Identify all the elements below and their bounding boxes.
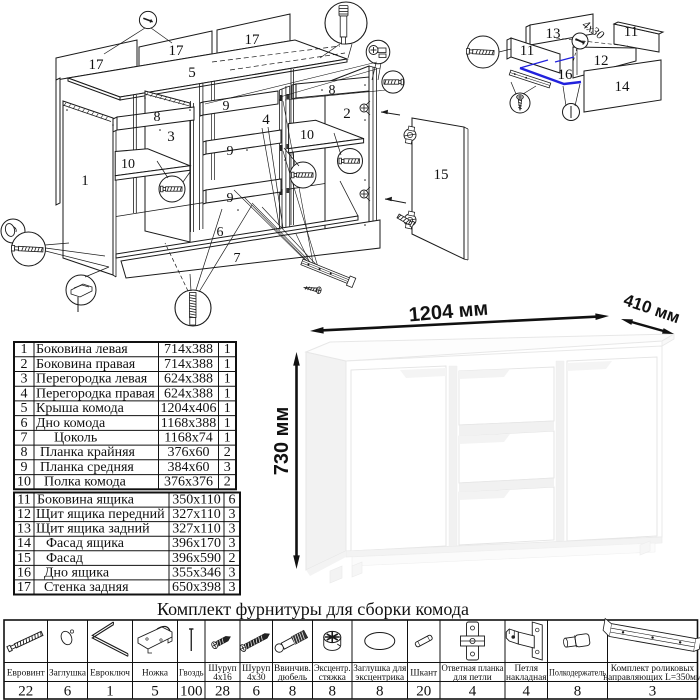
- svg-text:396х170: 396х170: [172, 536, 221, 551]
- svg-text:327х110: 327х110: [172, 522, 220, 537]
- svg-text:Ножка: Ножка: [142, 669, 168, 679]
- svg-text:5: 5: [21, 401, 28, 416]
- svg-text:Планка крайняя: Планка крайняя: [40, 445, 136, 460]
- svg-text:1204х406: 1204х406: [161, 401, 217, 416]
- svg-text:396х590: 396х590: [172, 551, 221, 566]
- svg-text:1: 1: [106, 684, 114, 700]
- svg-text:Боковина левая: Боковина левая: [36, 342, 128, 357]
- svg-text:9: 9: [21, 460, 28, 475]
- svg-text:3: 3: [229, 580, 236, 595]
- svg-text:5: 5: [151, 684, 159, 700]
- svg-text:направляющих L=350мм: направляющих L=350мм: [603, 673, 700, 683]
- svg-text:5: 5: [188, 65, 196, 81]
- svg-text:7: 7: [21, 431, 28, 446]
- svg-text:17: 17: [89, 57, 105, 73]
- svg-text:6: 6: [21, 416, 28, 431]
- svg-text:15: 15: [17, 551, 31, 566]
- svg-text:3: 3: [21, 372, 28, 387]
- svg-text:2: 2: [224, 475, 231, 490]
- svg-text:3: 3: [229, 522, 236, 537]
- svg-text:10: 10: [17, 475, 31, 490]
- svg-text:17: 17: [169, 43, 185, 59]
- svg-text:1168х388: 1168х388: [161, 416, 216, 431]
- svg-text:дюбель: дюбель: [278, 672, 307, 683]
- svg-text:17: 17: [17, 580, 31, 595]
- svg-text:327х110: 327х110: [172, 507, 220, 522]
- svg-text:3: 3: [229, 565, 236, 580]
- svg-text:4х16: 4х16: [213, 673, 232, 683]
- svg-text:4: 4: [523, 684, 531, 700]
- svg-text:12: 12: [17, 507, 31, 522]
- svg-text:4: 4: [21, 386, 28, 401]
- svg-text:14: 14: [17, 536, 31, 551]
- svg-text:11: 11: [624, 24, 638, 40]
- svg-text:9: 9: [227, 144, 234, 159]
- svg-text:Фасад ящика: Фасад ящика: [46, 536, 125, 551]
- svg-text:22: 22: [18, 684, 33, 700]
- svg-text:1: 1: [224, 357, 231, 372]
- svg-text:8: 8: [21, 445, 28, 460]
- svg-text:стяжка: стяжка: [319, 673, 346, 683]
- svg-text:7: 7: [234, 251, 241, 266]
- svg-text:Боковина ящика: Боковина ящика: [37, 492, 135, 507]
- svg-text:Боковина правая: Боковина правая: [36, 357, 136, 372]
- svg-text:376х376: 376х376: [164, 475, 213, 490]
- svg-text:2: 2: [224, 445, 231, 460]
- svg-text:6: 6: [229, 492, 236, 507]
- svg-text:1: 1: [224, 416, 231, 431]
- svg-text:Полкодержатель: Полкодержатель: [549, 669, 606, 679]
- svg-text:2: 2: [229, 551, 236, 566]
- svg-text:16: 16: [17, 565, 31, 580]
- svg-text:1: 1: [224, 342, 231, 357]
- svg-text:Фасад: Фасад: [46, 551, 83, 566]
- svg-text:Щит ящика задний: Щит ящика задний: [36, 522, 150, 537]
- svg-text:2: 2: [343, 106, 351, 122]
- svg-text:15: 15: [434, 167, 449, 183]
- svg-text:1: 1: [224, 431, 231, 446]
- svg-text:8: 8: [376, 684, 384, 700]
- svg-text:9: 9: [227, 191, 234, 206]
- svg-text:650х398: 650х398: [172, 580, 221, 595]
- svg-text:8: 8: [289, 684, 297, 700]
- svg-text:Гвоздь: Гвоздь: [179, 669, 204, 679]
- svg-text:10: 10: [300, 128, 314, 143]
- svg-text:11: 11: [17, 492, 30, 507]
- svg-text:1: 1: [224, 372, 231, 387]
- svg-text:8: 8: [154, 110, 161, 125]
- svg-text:3: 3: [167, 129, 175, 145]
- svg-text:9: 9: [223, 99, 230, 114]
- svg-text:Шкант: Шкант: [410, 669, 437, 679]
- svg-text:714х388: 714х388: [164, 357, 213, 372]
- svg-text:Дно ящика: Дно ящика: [44, 565, 110, 580]
- svg-text:Перегородка левая: Перегородка левая: [36, 372, 148, 387]
- svg-text:Планка средняя: Планка средняя: [40, 460, 134, 475]
- svg-text:1168х74: 1168х74: [164, 431, 212, 446]
- svg-text:3: 3: [649, 684, 657, 700]
- svg-text:Евроключ: Евроключ: [90, 669, 130, 679]
- svg-text:16: 16: [558, 67, 574, 83]
- svg-text:эксцентрика: эксцентрика: [355, 673, 404, 683]
- svg-text:для петли: для петли: [453, 673, 492, 683]
- svg-text:Перегородка правая: Перегородка правая: [36, 386, 155, 401]
- svg-text:1: 1: [224, 386, 231, 401]
- svg-text:6: 6: [64, 684, 72, 700]
- svg-text:3: 3: [229, 536, 236, 551]
- svg-text:624х388: 624х388: [164, 372, 213, 387]
- svg-text:Дно комода: Дно комода: [36, 416, 106, 431]
- svg-text:350х110: 350х110: [172, 492, 220, 507]
- svg-text:624х388: 624х388: [164, 386, 213, 401]
- svg-text:28: 28: [215, 684, 230, 700]
- svg-text:2: 2: [21, 357, 28, 372]
- svg-text:355х346: 355х346: [172, 565, 221, 580]
- svg-text:Стенка задняя: Стенка задняя: [44, 580, 129, 595]
- svg-text:3: 3: [224, 460, 231, 475]
- svg-text:10: 10: [121, 157, 135, 172]
- svg-text:20: 20: [416, 684, 431, 700]
- svg-text:Заглушка: Заглушка: [49, 669, 86, 679]
- svg-text:4: 4: [262, 112, 270, 128]
- svg-text:13: 13: [17, 522, 31, 537]
- svg-text:Комплект фурнитуры для сборки: Комплект фурнитуры для сборки комода: [157, 599, 469, 619]
- svg-text:4: 4: [469, 684, 477, 700]
- svg-text:Евровинт: Евровинт: [7, 669, 45, 679]
- svg-text:Полка комода: Полка комода: [44, 475, 127, 490]
- svg-text:730 мм: 730 мм: [271, 407, 293, 476]
- svg-text:6: 6: [253, 684, 261, 700]
- svg-text:6: 6: [217, 225, 224, 240]
- svg-text:13: 13: [546, 26, 561, 42]
- svg-text:1: 1: [81, 173, 89, 189]
- svg-text:4х30: 4х30: [247, 673, 266, 683]
- svg-text:8: 8: [329, 684, 337, 700]
- svg-text:Щит ящика передний: Щит ящика передний: [36, 507, 165, 522]
- svg-text:17: 17: [245, 32, 261, 48]
- svg-text:1: 1: [224, 401, 231, 416]
- svg-text:384х60: 384х60: [168, 460, 210, 475]
- svg-text:14: 14: [615, 79, 631, 95]
- svg-text:376х60: 376х60: [168, 445, 210, 460]
- svg-text:12: 12: [594, 53, 609, 69]
- svg-text:Цоколь: Цоколь: [54, 431, 97, 446]
- svg-text:714х388: 714х388: [164, 342, 213, 357]
- svg-text:1: 1: [21, 342, 28, 357]
- svg-text:накладная: накладная: [506, 673, 547, 683]
- svg-text:3: 3: [229, 507, 236, 522]
- svg-text:11: 11: [520, 43, 534, 59]
- svg-text:Крыша комода: Крыша комода: [36, 401, 125, 416]
- svg-text:8: 8: [574, 684, 582, 700]
- svg-text:100: 100: [180, 684, 203, 700]
